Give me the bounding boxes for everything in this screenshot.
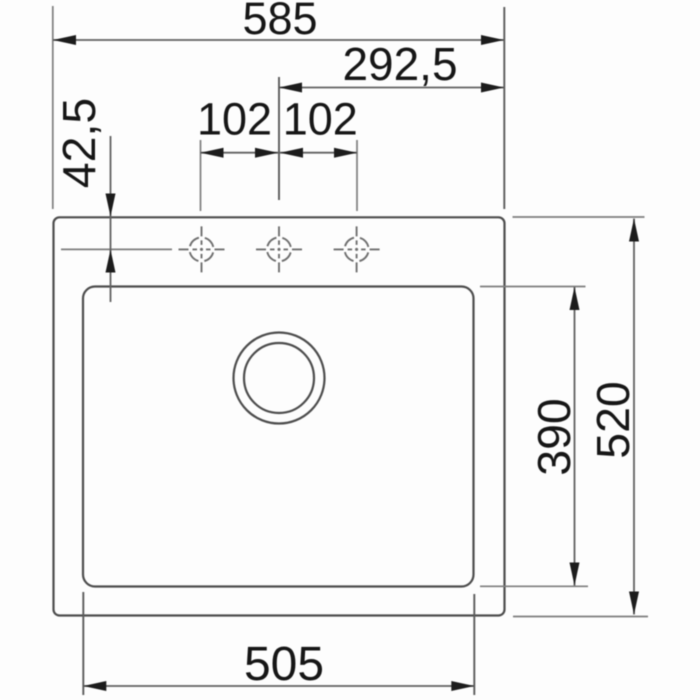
svg-text:505: 505 <box>244 638 324 691</box>
svg-text:102: 102 <box>283 94 358 145</box>
svg-text:102: 102 <box>197 94 272 145</box>
svg-text:292,5: 292,5 <box>342 38 457 90</box>
svg-text:390: 390 <box>528 398 580 476</box>
svg-text:520: 520 <box>587 381 639 459</box>
svg-text:585: 585 <box>242 0 317 44</box>
svg-text:42,5: 42,5 <box>53 98 105 189</box>
